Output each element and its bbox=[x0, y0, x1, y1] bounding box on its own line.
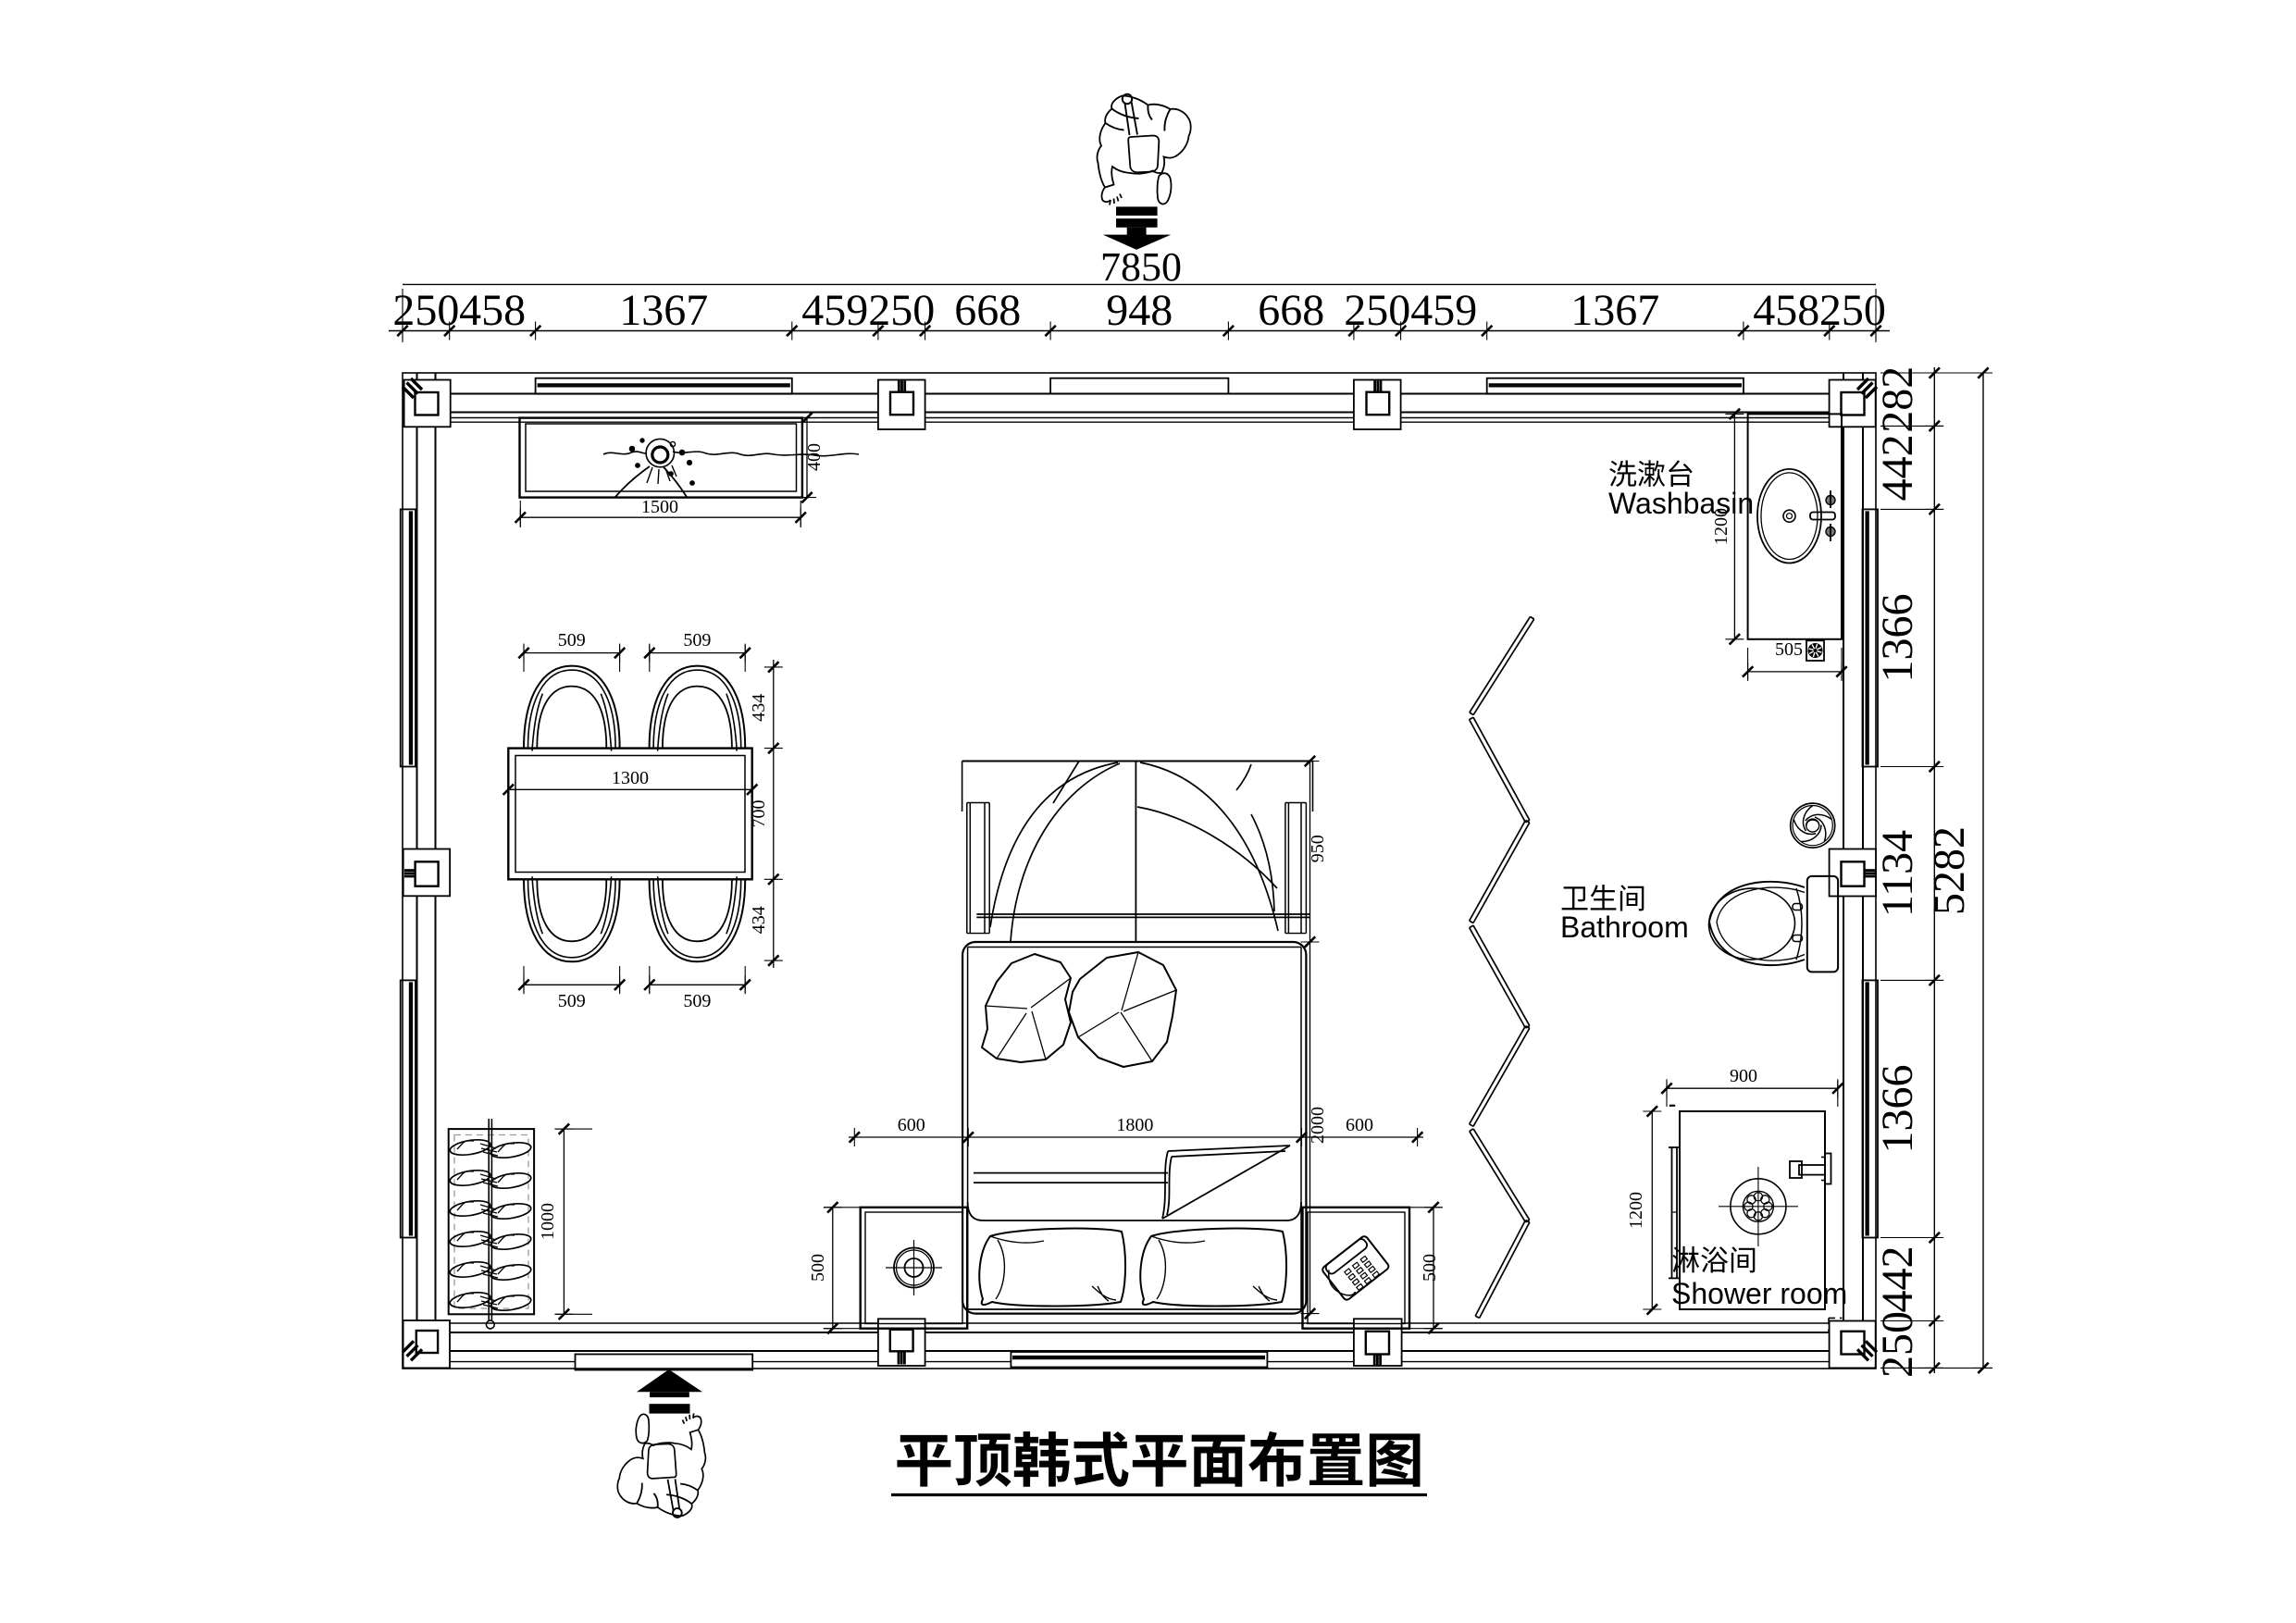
svg-text:509: 509 bbox=[683, 630, 711, 650]
svg-text:Bathroom: Bathroom bbox=[1560, 911, 1689, 944]
svg-text:400: 400 bbox=[804, 443, 825, 471]
svg-text:600: 600 bbox=[1346, 1115, 1373, 1135]
svg-text:459: 459 bbox=[801, 286, 868, 335]
svg-text:1367: 1367 bbox=[1570, 286, 1659, 335]
svg-text:509: 509 bbox=[683, 991, 711, 1011]
svg-text:442: 442 bbox=[1873, 1246, 1922, 1313]
svg-text:1800: 1800 bbox=[1116, 1115, 1153, 1135]
svg-text:7850: 7850 bbox=[1100, 244, 1182, 290]
svg-text:505: 505 bbox=[1775, 639, 1803, 660]
svg-text:Washbasin: Washbasin bbox=[1608, 487, 1754, 520]
svg-text:250: 250 bbox=[392, 286, 459, 335]
svg-text:250: 250 bbox=[1344, 286, 1410, 335]
svg-text:600: 600 bbox=[898, 1115, 925, 1135]
svg-text:1200: 1200 bbox=[1626, 1192, 1646, 1229]
svg-text:434: 434 bbox=[749, 906, 769, 934]
svg-text:509: 509 bbox=[558, 630, 586, 650]
svg-text:950: 950 bbox=[1308, 835, 1328, 862]
svg-text:1367: 1367 bbox=[619, 286, 708, 335]
svg-text:668: 668 bbox=[1258, 286, 1324, 335]
svg-text:250: 250 bbox=[868, 286, 935, 335]
svg-text:1366: 1366 bbox=[1873, 594, 1922, 683]
svg-text:500: 500 bbox=[808, 1254, 828, 1282]
svg-text:668: 668 bbox=[954, 286, 1021, 335]
svg-text:509: 509 bbox=[558, 991, 586, 1011]
svg-text:948: 948 bbox=[1106, 286, 1173, 335]
svg-text:434: 434 bbox=[749, 694, 769, 722]
svg-text:250: 250 bbox=[1819, 286, 1886, 335]
svg-text:458: 458 bbox=[459, 286, 526, 335]
svg-text:282: 282 bbox=[1873, 366, 1922, 433]
svg-text:1300: 1300 bbox=[612, 768, 649, 788]
svg-text:1000: 1000 bbox=[538, 1203, 558, 1240]
svg-text:2000: 2000 bbox=[1308, 1107, 1328, 1144]
svg-text:1134: 1134 bbox=[1873, 830, 1922, 917]
svg-text:700: 700 bbox=[749, 800, 769, 828]
svg-text:900: 900 bbox=[1730, 1066, 1757, 1086]
svg-text:459: 459 bbox=[1410, 286, 1477, 335]
svg-text:442: 442 bbox=[1873, 434, 1922, 501]
svg-text:Shower room: Shower room bbox=[1671, 1277, 1847, 1310]
svg-text:1500: 1500 bbox=[641, 497, 678, 517]
svg-text:500: 500 bbox=[1420, 1254, 1440, 1282]
svg-text:458: 458 bbox=[1753, 286, 1819, 335]
svg-text:5282: 5282 bbox=[1925, 826, 1974, 915]
svg-text:1366: 1366 bbox=[1873, 1065, 1922, 1154]
